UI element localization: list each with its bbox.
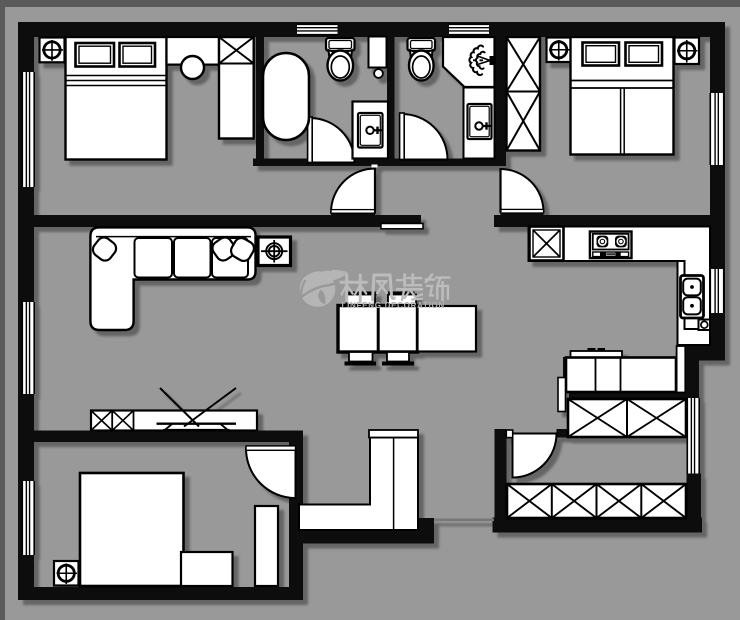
svg-text:LINFENG DECORATION: LINFENG DECORATION — [342, 301, 445, 310]
